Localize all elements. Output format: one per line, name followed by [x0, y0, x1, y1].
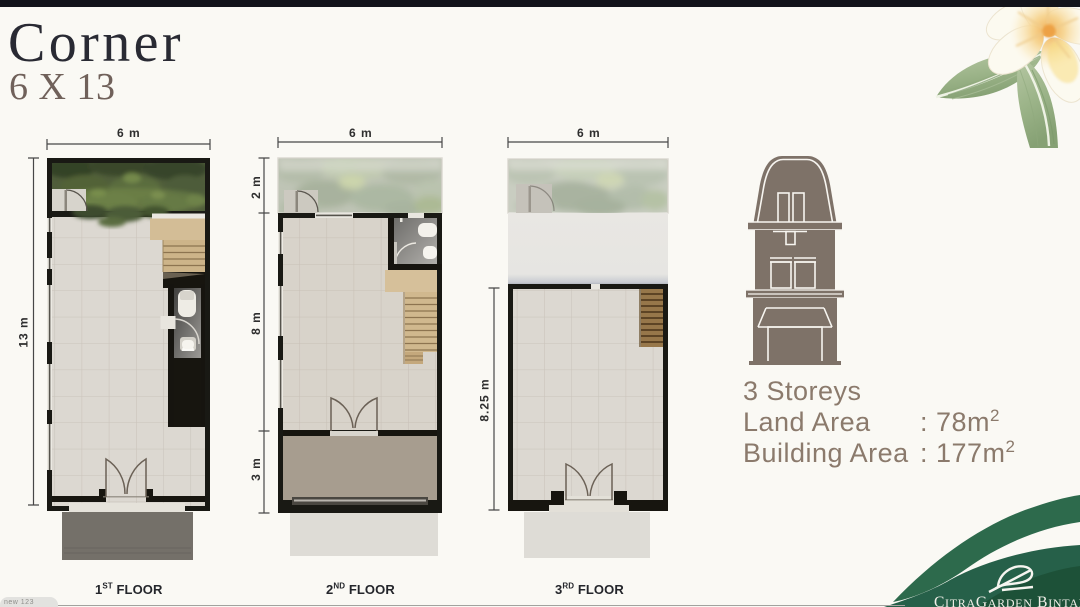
svg-text:CITRAGARDEN BINTARO: CITRAGARDEN BINTARO — [934, 594, 1080, 607]
